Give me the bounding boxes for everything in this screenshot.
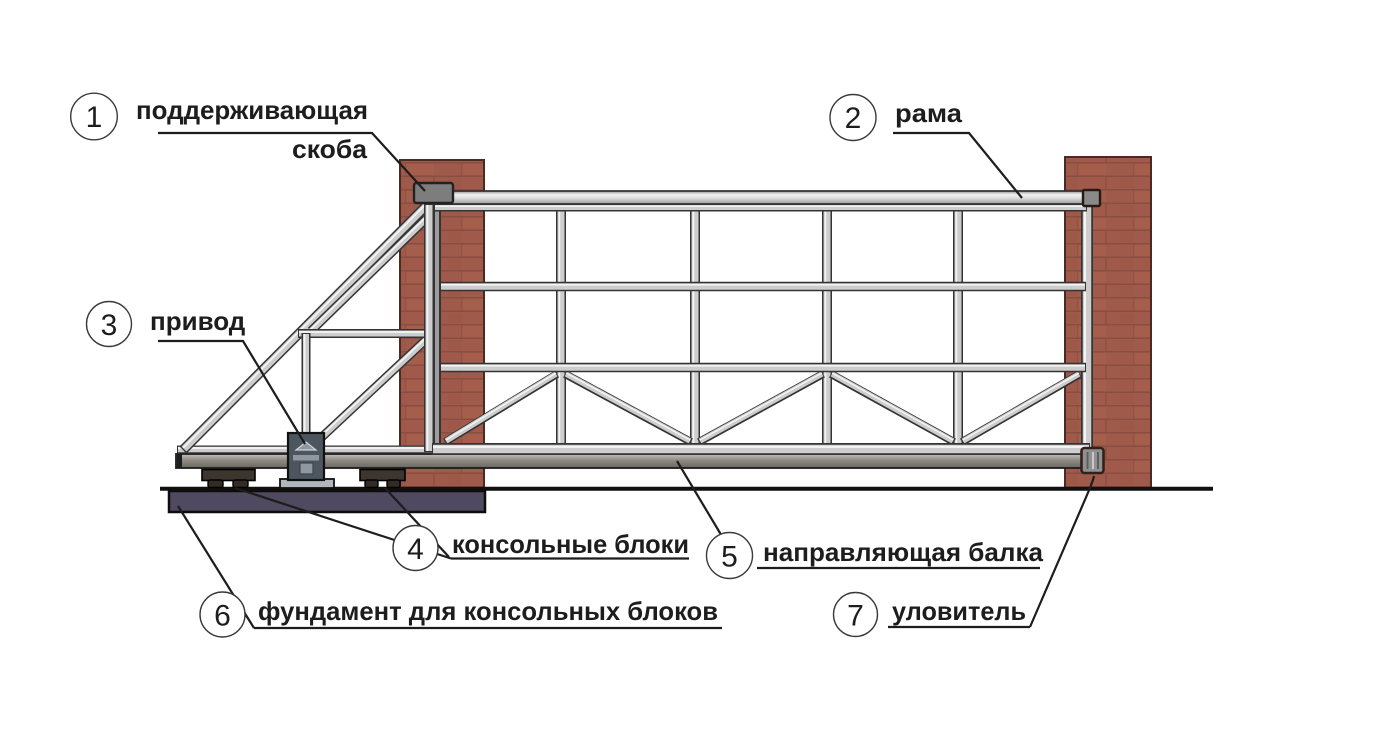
svg-text:2: 2 [845,102,862,135]
svg-text:4: 4 [407,533,424,566]
svg-text:5: 5 [721,541,738,574]
svg-text:поддерживающая: поддерживающая [136,95,368,125]
svg-text:скоба: скоба [292,134,368,164]
svg-text:6: 6 [214,600,231,633]
svg-text:направляющая балка: направляющая балка [763,537,1044,567]
svg-text:7: 7 [847,600,864,633]
svg-text:3: 3 [101,309,118,342]
svg-text:консольные блоки: консольные блоки [452,529,689,559]
svg-text:привод: привод [150,306,246,336]
svg-text:рама: рама [895,98,963,128]
svg-text:уловитель: уловитель [892,596,1026,626]
svg-text:1: 1 [86,101,103,134]
svg-text:фундамент для консольных блоко: фундамент для консольных блоков [258,596,718,626]
